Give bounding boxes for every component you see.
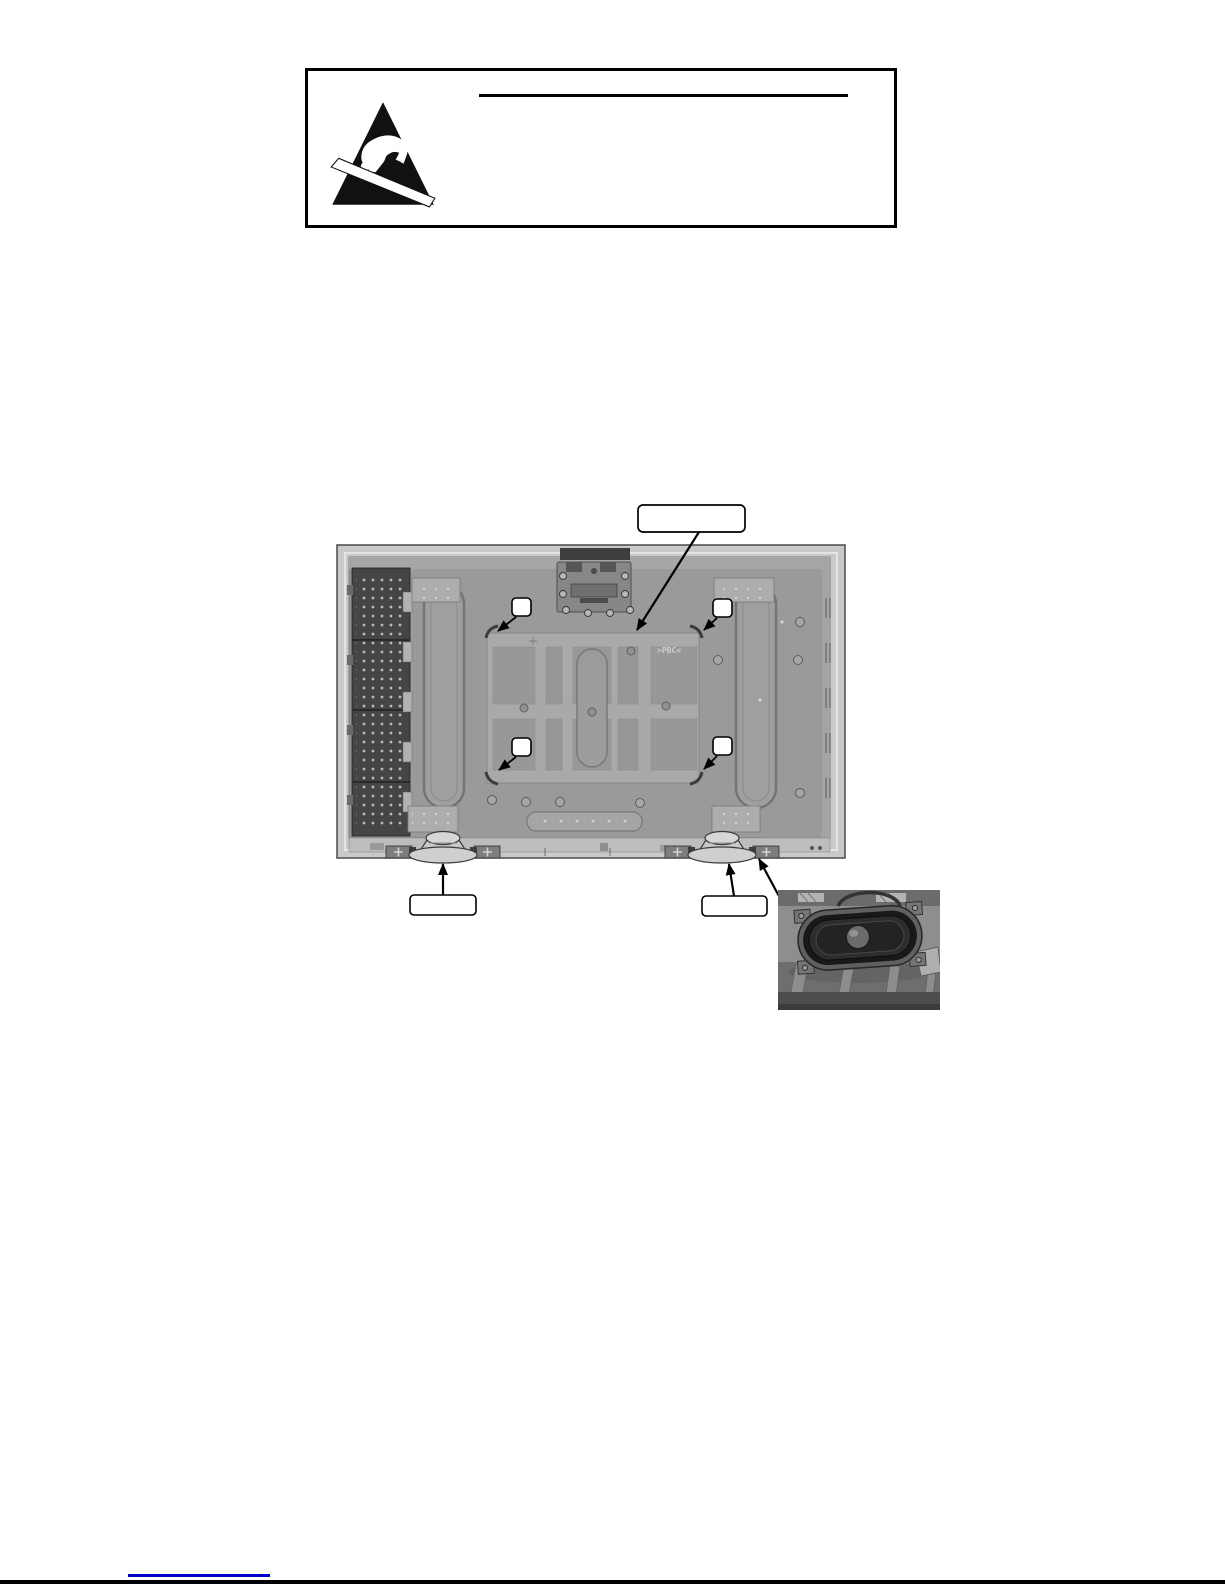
callout-top-box (638, 505, 745, 532)
warning-heading-underline (479, 94, 848, 97)
arrow-inset-to-speaker (759, 859, 780, 898)
rear-panel-diagram: >PBC< (300, 480, 960, 1025)
connector-board (347, 568, 412, 836)
callout-screw-bottom-right (713, 737, 732, 755)
bottom-handle (527, 812, 642, 831)
callout-speaker-right-box (702, 896, 767, 916)
esd-warning-triangle-icon (329, 100, 437, 208)
right-vent-channel (736, 584, 776, 808)
speaker-closeup-photo (778, 890, 941, 1010)
callout-screw-top-left (512, 598, 531, 616)
page-bottom-rule (0, 1580, 1225, 1584)
callout-screw-bottom-left (512, 738, 531, 756)
callout-speaker-left-box (410, 895, 476, 915)
left-vent-channel (424, 584, 464, 808)
stand-bracket (557, 548, 634, 617)
footer-hyperlink[interactable] (128, 1574, 270, 1577)
callout-screw-top-right (713, 599, 732, 617)
vesa-mount-plate: >PBC< (486, 626, 702, 784)
pbc-marking-text: >PBC< (657, 646, 681, 655)
arrow-speaker-right (729, 864, 734, 896)
document-page: >PBC< (0, 0, 1225, 1585)
